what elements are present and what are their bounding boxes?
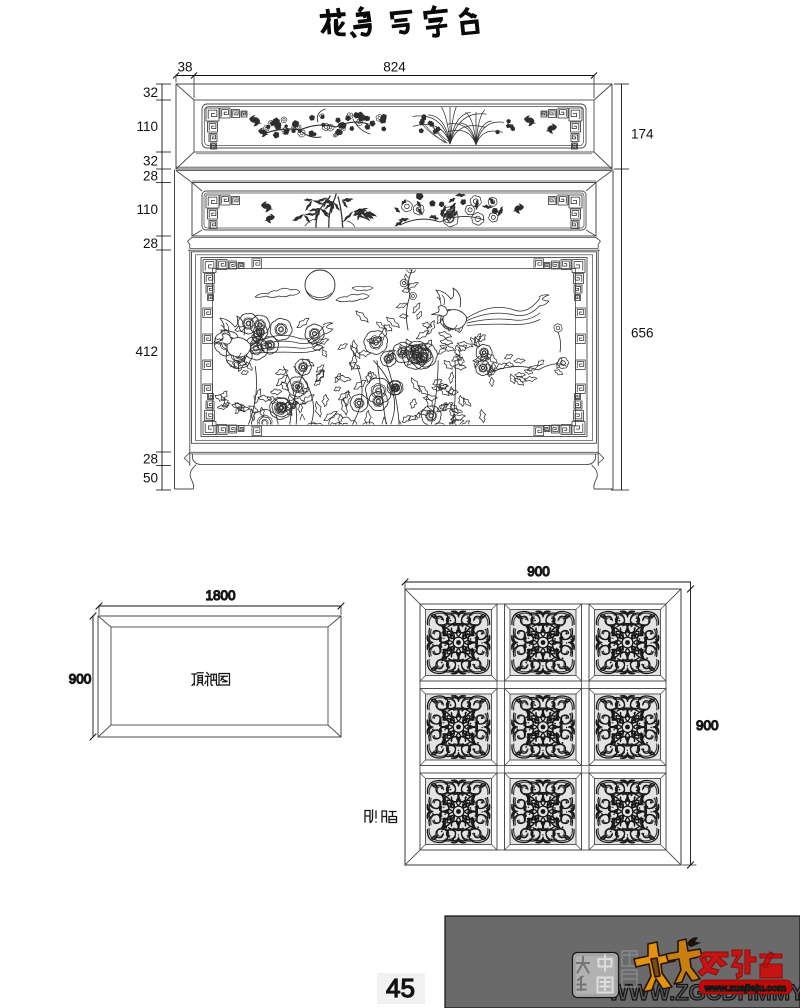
svg-text:900: 900 [527,564,550,579]
svg-text:38: 38 [177,60,192,75]
svg-text:28: 28 [143,452,158,467]
svg-text:110: 110 [136,119,158,134]
svg-text:900: 900 [696,718,719,733]
svg-text:412: 412 [135,344,158,359]
svg-text:www.zuajiaju.com: www.zuajiaju.com [704,983,786,994]
svg-text:824: 824 [383,60,406,75]
svg-text:50: 50 [143,471,158,486]
svg-text:900: 900 [69,672,92,687]
svg-text:45: 45 [386,973,415,1003]
svg-text:656: 656 [631,326,654,341]
svg-text:32: 32 [143,85,158,100]
svg-text:28: 28 [143,236,158,251]
svg-text:1800: 1800 [205,588,235,603]
svg-text:174: 174 [631,127,654,142]
svg-text:110: 110 [136,202,158,217]
svg-text:28: 28 [143,169,158,184]
svg-text:32: 32 [143,154,158,169]
